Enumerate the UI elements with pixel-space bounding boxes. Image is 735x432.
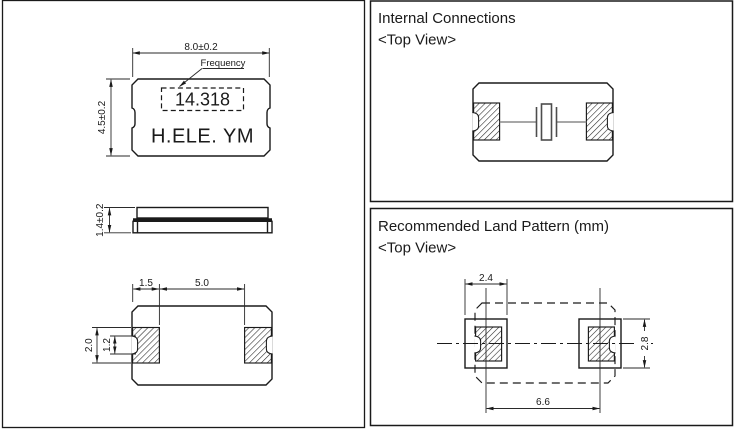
land-span-dim-text: 6.6 <box>536 397 550 408</box>
land-width-dim-text: 2.4 <box>479 273 493 284</box>
drawing-svg: 14.318 H.ELE. YM 8.0±0.2 Frequency 4.5±0… <box>0 0 735 432</box>
side-view-lid <box>137 208 268 219</box>
internal-connections-panel: Internal Connections <Top View> <box>378 10 614 161</box>
frequency-marking-text: 14.318 <box>175 90 230 110</box>
bottom-view: 1.5 5.0 2.0 1.2 <box>84 278 273 385</box>
side-view-base <box>133 221 272 233</box>
land-pattern-title: Recommended Land Pattern (mm) <box>378 218 609 235</box>
internal-connections-view-label: <Top View> <box>378 32 456 49</box>
land-pattern-view-label: <Top View> <box>378 240 456 257</box>
logo-marking-text: H.ELE. YM <box>151 126 254 148</box>
internal-connections-title: Internal Connections <box>378 10 516 27</box>
side-view: 1.4±0.2 <box>95 203 272 237</box>
castellation-dimension: 1.2 <box>102 336 136 354</box>
pad-gap-dim-text: 5.0 <box>195 278 209 289</box>
crystal-electrode <box>542 104 552 140</box>
castellation-dim-text: 1.2 <box>102 338 113 352</box>
thickness-dimension: 1.4±0.2 <box>95 203 135 237</box>
pad-height-dim-text: 2.0 <box>84 338 95 352</box>
land-height-dim-text: 2.8 <box>640 336 651 350</box>
thickness-dim-text: 1.4±0.2 <box>95 203 106 237</box>
pad-width-dim-text: 1.5 <box>139 278 153 289</box>
land-pattern-panel: Recommended Land Pattern (mm) <Top View>… <box>378 218 653 413</box>
top-view: 14.318 H.ELE. YM 8.0±0.2 Frequency 4.5±0… <box>97 42 270 156</box>
datasheet-drawing: 14.318 H.ELE. YM 8.0±0.2 Frequency 4.5±0… <box>0 0 735 432</box>
body-height-dim-text: 4.5±0.2 <box>97 100 108 134</box>
body-height-dimension: 4.5±0.2 <box>97 79 130 156</box>
frequency-label-text: Frequency <box>201 58 246 69</box>
body-width-dim-text: 8.0±0.2 <box>184 42 218 53</box>
land-span-dimension: 6.6 <box>487 397 600 409</box>
